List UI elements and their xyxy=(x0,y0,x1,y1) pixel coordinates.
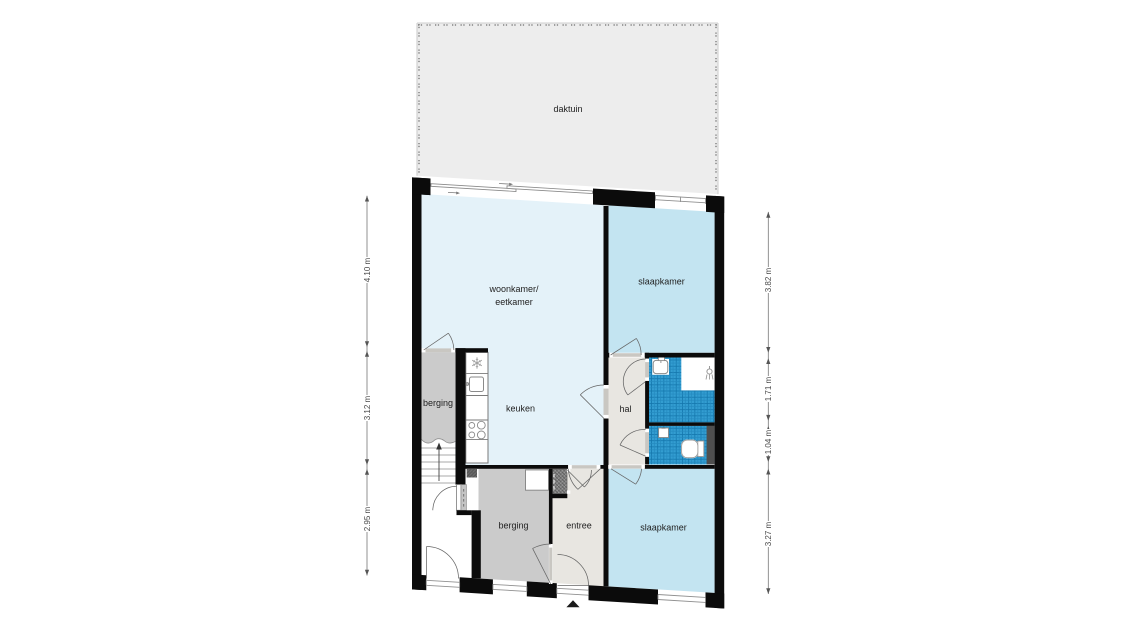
svg-text:1.71 m: 1.71 m xyxy=(764,376,773,401)
svg-text:2.95 m: 2.95 m xyxy=(363,506,372,531)
svg-text:berging: berging xyxy=(423,398,453,408)
svg-text:3.82 m: 3.82 m xyxy=(764,267,773,292)
svg-text:entree: entree xyxy=(566,521,592,531)
svg-text:3.27 m: 3.27 m xyxy=(764,521,773,546)
svg-text:hal: hal xyxy=(619,404,631,414)
svg-text:berging: berging xyxy=(498,521,528,531)
svg-text:eetkamer: eetkamer xyxy=(495,297,533,307)
svg-text:slaapkamer: slaapkamer xyxy=(638,277,685,287)
svg-text:slaapkamer: slaapkamer xyxy=(640,523,687,533)
svg-text:4.10 m: 4.10 m xyxy=(363,257,372,282)
svg-text:keuken: keuken xyxy=(506,404,535,414)
svg-text:1.04 m: 1.04 m xyxy=(764,429,773,454)
svg-text:3.12 m: 3.12 m xyxy=(363,395,372,420)
svg-text:woonkamer/: woonkamer/ xyxy=(488,284,539,294)
svg-text:daktuin: daktuin xyxy=(553,104,582,114)
